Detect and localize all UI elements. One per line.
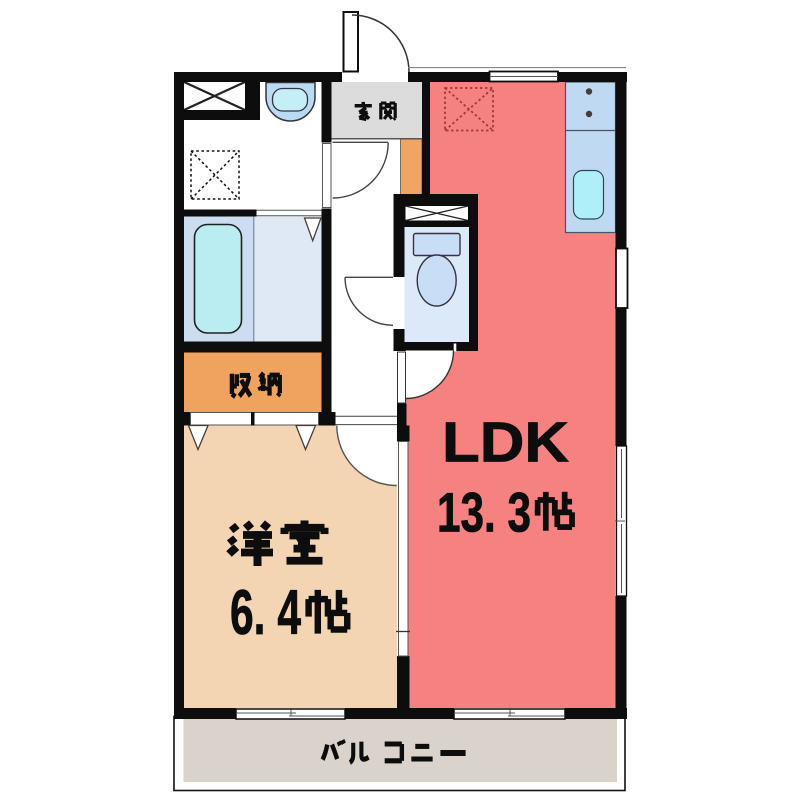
- svg-text:LDK: LDK: [442, 411, 569, 475]
- svg-text:13. 3: 13. 3: [437, 481, 531, 544]
- svg-text:6. 4: 6. 4: [230, 578, 301, 648]
